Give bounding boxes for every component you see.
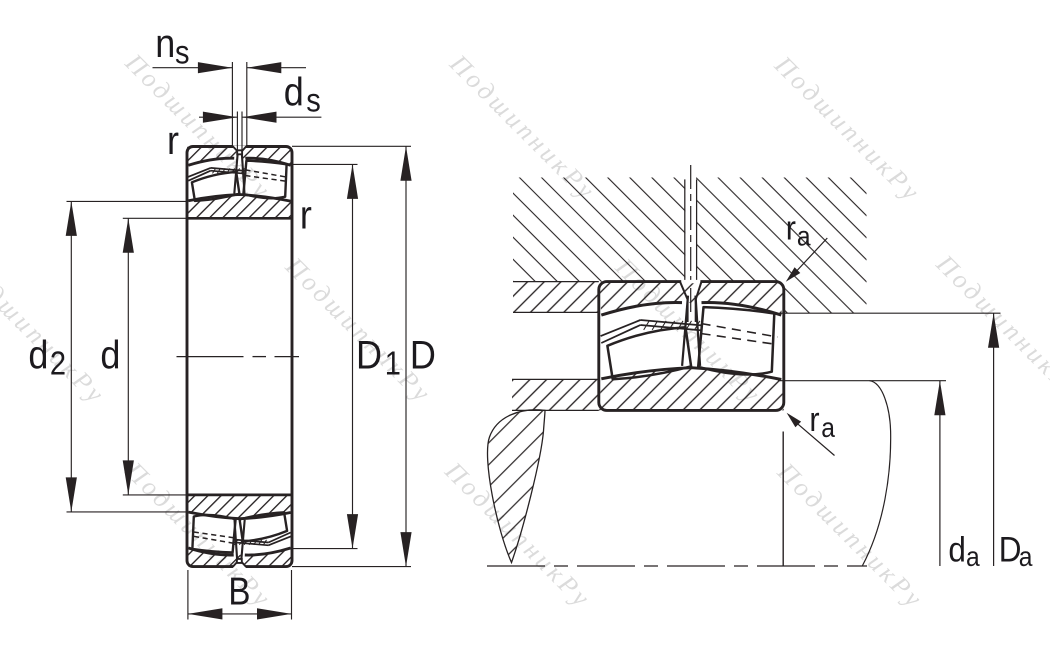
svg-text:d: d (28, 334, 48, 378)
svg-text:d: d (100, 334, 120, 378)
svg-text:a: a (1019, 540, 1033, 572)
svg-text:D: D (410, 334, 436, 378)
svg-text:a: a (797, 220, 811, 252)
svg-text:s: s (306, 82, 321, 119)
svg-text:r: r (167, 119, 179, 163)
svg-text:D: D (356, 334, 382, 378)
svg-text:s: s (175, 34, 190, 71)
svg-text:2: 2 (50, 345, 66, 382)
svg-text:n: n (155, 23, 175, 67)
svg-text:r: r (809, 401, 819, 439)
svg-text:a: a (966, 540, 980, 572)
svg-text:B: B (228, 570, 250, 613)
svg-text:1: 1 (385, 345, 401, 382)
svg-text:d: d (948, 531, 966, 570)
svg-text:r: r (786, 209, 796, 247)
svg-text:d: d (284, 71, 304, 115)
svg-text:r: r (300, 194, 312, 238)
svg-text:a: a (821, 412, 835, 444)
